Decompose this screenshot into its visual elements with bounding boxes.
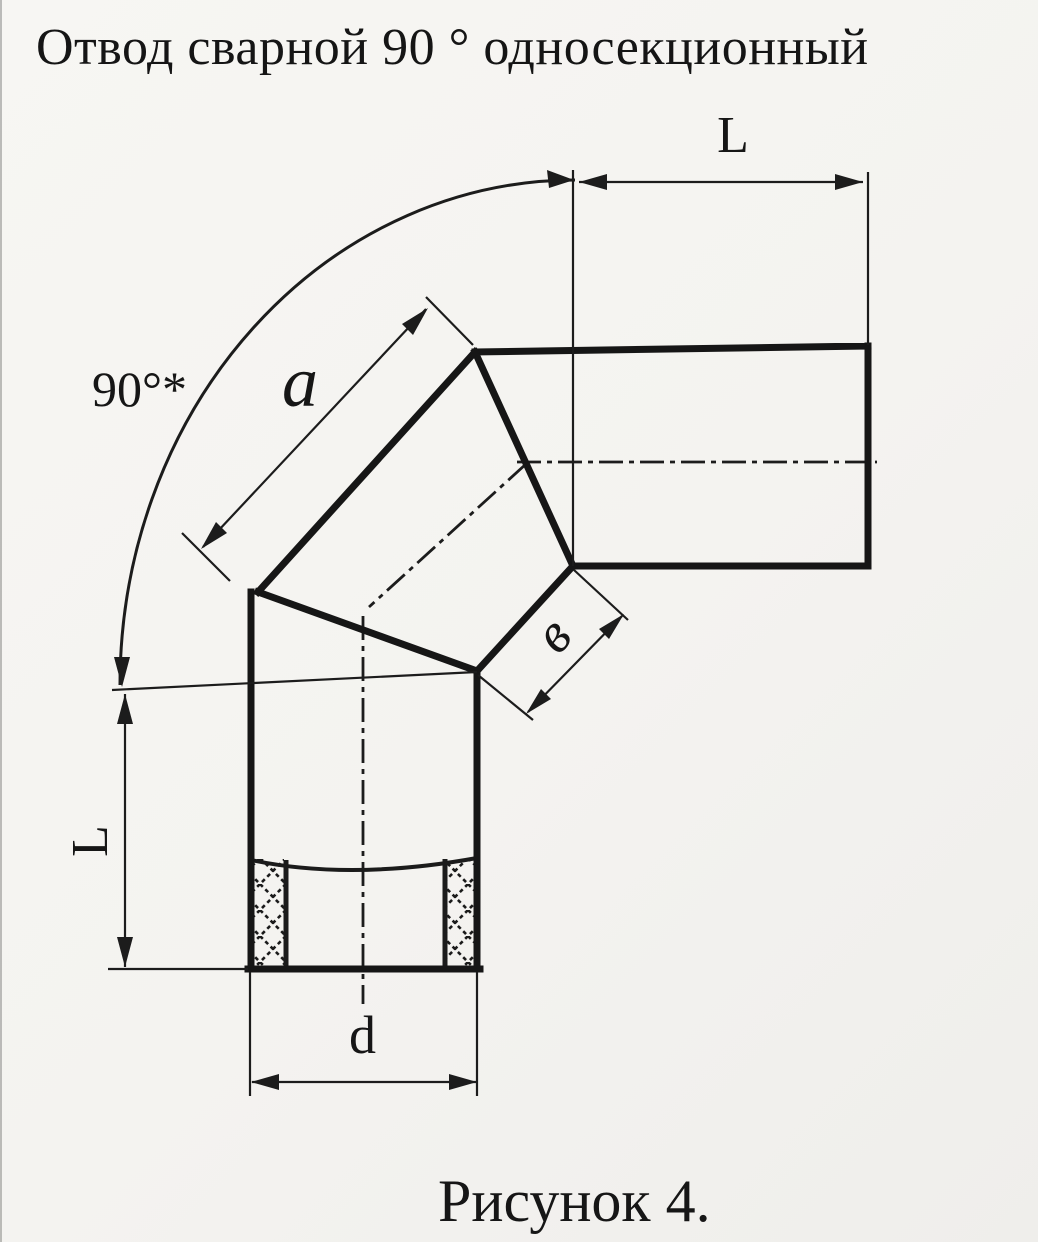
dim-label-angle-90: 90°* — [92, 364, 187, 414]
scanned-drawing-page: Отвод сварной 90 ° односекционный — [0, 0, 1038, 1242]
extension-line — [574, 570, 628, 620]
dim-label-a: a — [282, 346, 318, 418]
dim-label-L-top: L — [703, 110, 763, 162]
dimension-L-left — [108, 672, 477, 969]
figure-caption: Рисунок 4. — [438, 1168, 711, 1234]
dimension-a — [182, 297, 473, 581]
extension-line — [478, 675, 533, 720]
angle-arc — [114, 170, 575, 687]
dim-label-L-left: L — [65, 811, 117, 871]
centerlines — [363, 462, 877, 1004]
weld-seam-left — [258, 592, 477, 671]
weld-seam-right — [475, 352, 573, 566]
elbow-outline — [248, 346, 868, 969]
dimension-L-top — [573, 170, 868, 566]
elbow-diagram — [0, 0, 1038, 1242]
extension-tick — [426, 297, 473, 345]
miter-section-centerline — [369, 464, 526, 607]
horizontal-pipe-outline — [475, 346, 868, 566]
extension-line — [112, 672, 477, 690]
dim-label-d: d — [349, 1008, 376, 1062]
